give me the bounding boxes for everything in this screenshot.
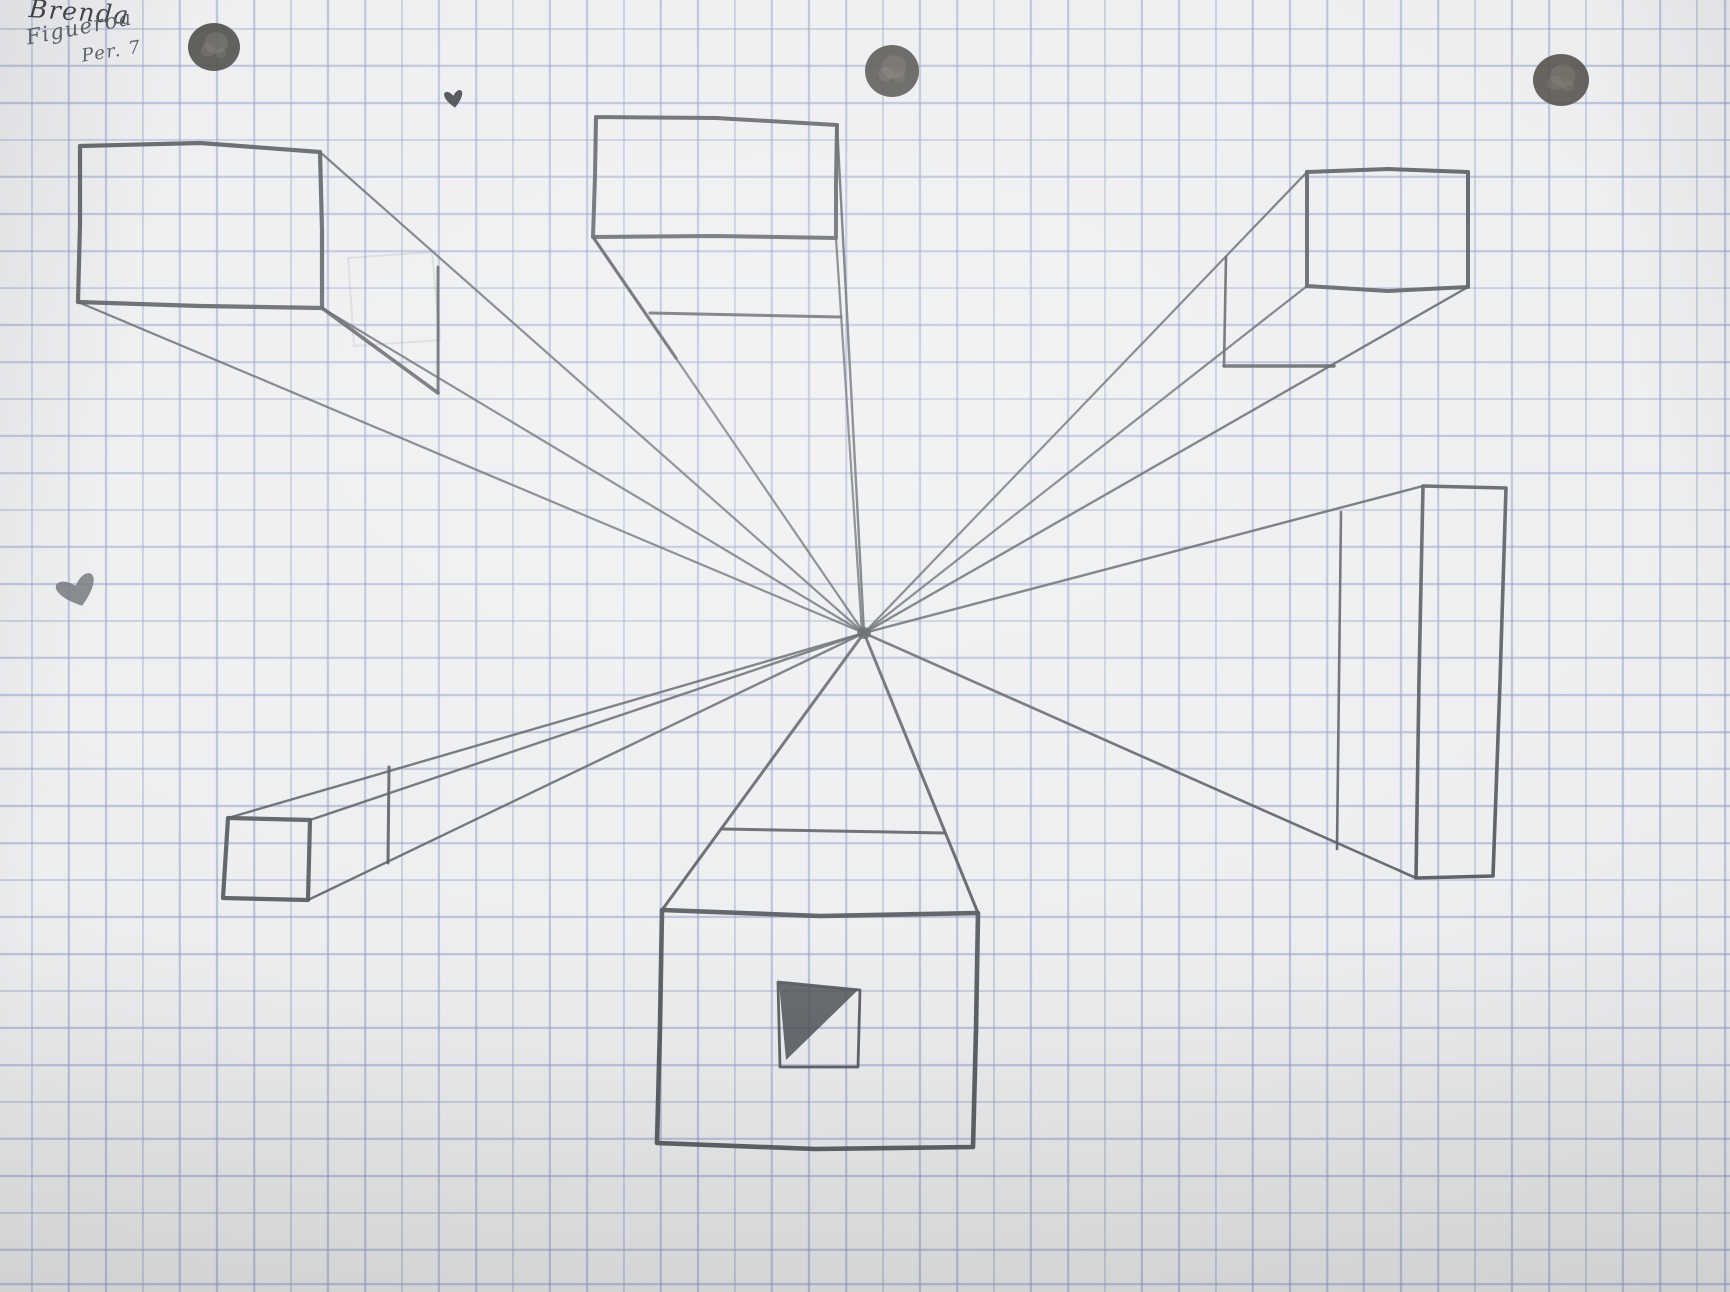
top-right-box-recede-bottom-left [864,286,1307,633]
bottom-center-box-front [657,910,978,1149]
photo-container: Brenda Figueroa Per. 7 [0,0,1730,1292]
bottom-left-box-recede-top-left [228,633,864,818]
right-box-back-vertical [1337,512,1341,849]
top-right-box-recede-top-left [864,172,1307,633]
marker-dot-right-speckle [1562,80,1574,91]
right-box-recede-bottom [864,633,1416,878]
marker-dot-center-speckle [893,71,905,82]
marker-dot-left-speckle [201,43,216,56]
bottom-center-back-top [723,829,944,833]
perspective-drawing [0,0,1730,1292]
bottom-center-roof-left [662,633,864,910]
marker-dot-left-speckle [215,48,226,59]
large-heart-doodle [54,572,100,612]
right-box-front [1416,486,1506,878]
top-center-box-front [593,117,837,238]
bottom-left-box-back-vertical [388,767,389,863]
top-left-box-recede-bottom-left [78,302,864,633]
bottom-left-box-front [223,818,310,900]
top-center-box-recede-top-right [837,125,864,633]
top-left-box-recede-bottom-right [322,308,864,633]
marker-dot-right-speckle [1547,76,1563,91]
top-center-box-recede-bottom-right [836,238,862,633]
top-right-box-front [1307,169,1468,291]
inner-square-shading-triangle [779,983,858,1060]
bottom-left-box-recede-bottom-right [308,633,864,900]
bottom-left-box-recede-top-right [310,633,864,820]
top-center-box-back-bottom-edge [650,313,841,317]
small-heart-doodle [444,90,464,109]
top-center-box-recede-bl-dark [593,237,676,358]
top-left-box-edge-dark [322,308,438,393]
top-left-box-front [78,143,322,308]
vanishing-point-smudge [857,627,871,639]
marker-dot-center-speckle [878,67,893,82]
top-right-box-recede-bottom-right [864,287,1468,633]
